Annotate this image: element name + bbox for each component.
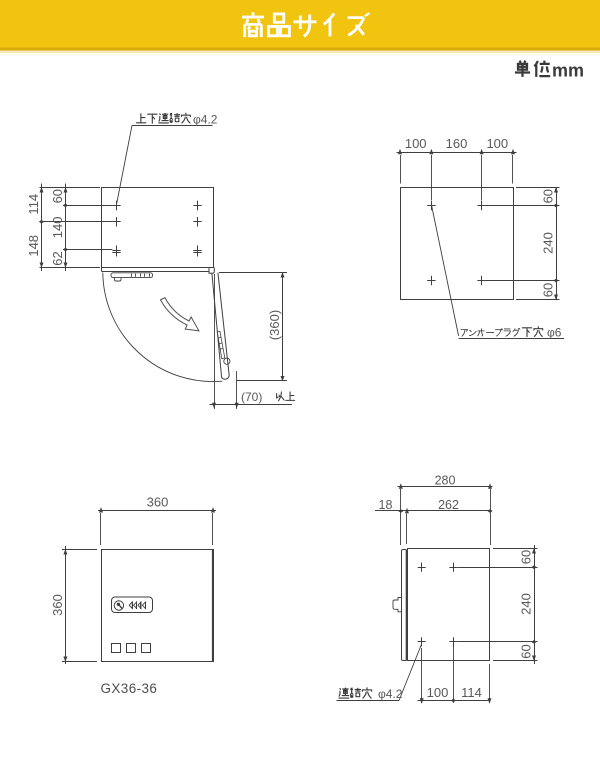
svg-text:100: 100 [427, 685, 449, 700]
svg-text:62: 62 [50, 251, 65, 265]
svg-text:360: 360 [147, 495, 169, 510]
svg-text:280: 280 [435, 474, 456, 488]
svg-text:148: 148 [26, 235, 41, 257]
svg-text:114: 114 [26, 194, 41, 215]
svg-text:φ4.2: φ4.2 [193, 113, 218, 127]
svg-text:114: 114 [461, 685, 482, 700]
svg-text:140: 140 [50, 217, 65, 239]
svg-text:mm: mm [552, 61, 584, 81]
svg-text:60: 60 [519, 550, 534, 564]
svg-text:262: 262 [438, 498, 459, 512]
svg-text:100: 100 [405, 136, 427, 151]
svg-text:60: 60 [50, 189, 65, 203]
svg-text:GX36-36: GX36-36 [101, 681, 158, 696]
svg-text:240: 240 [519, 593, 534, 615]
svg-text:(70): (70) [241, 390, 262, 404]
svg-text:360: 360 [50, 594, 65, 616]
svg-text:60: 60 [519, 644, 534, 658]
svg-text:18: 18 [379, 498, 393, 512]
svg-text:60: 60 [541, 283, 556, 297]
svg-text:φ4.2: φ4.2 [378, 687, 403, 701]
svg-text:100: 100 [486, 136, 508, 151]
svg-text:240: 240 [541, 232, 556, 254]
svg-text:φ6: φ6 [547, 326, 562, 340]
svg-text:60: 60 [541, 189, 556, 203]
svg-text:160: 160 [446, 136, 468, 151]
svg-text:(360): (360) [267, 310, 282, 340]
